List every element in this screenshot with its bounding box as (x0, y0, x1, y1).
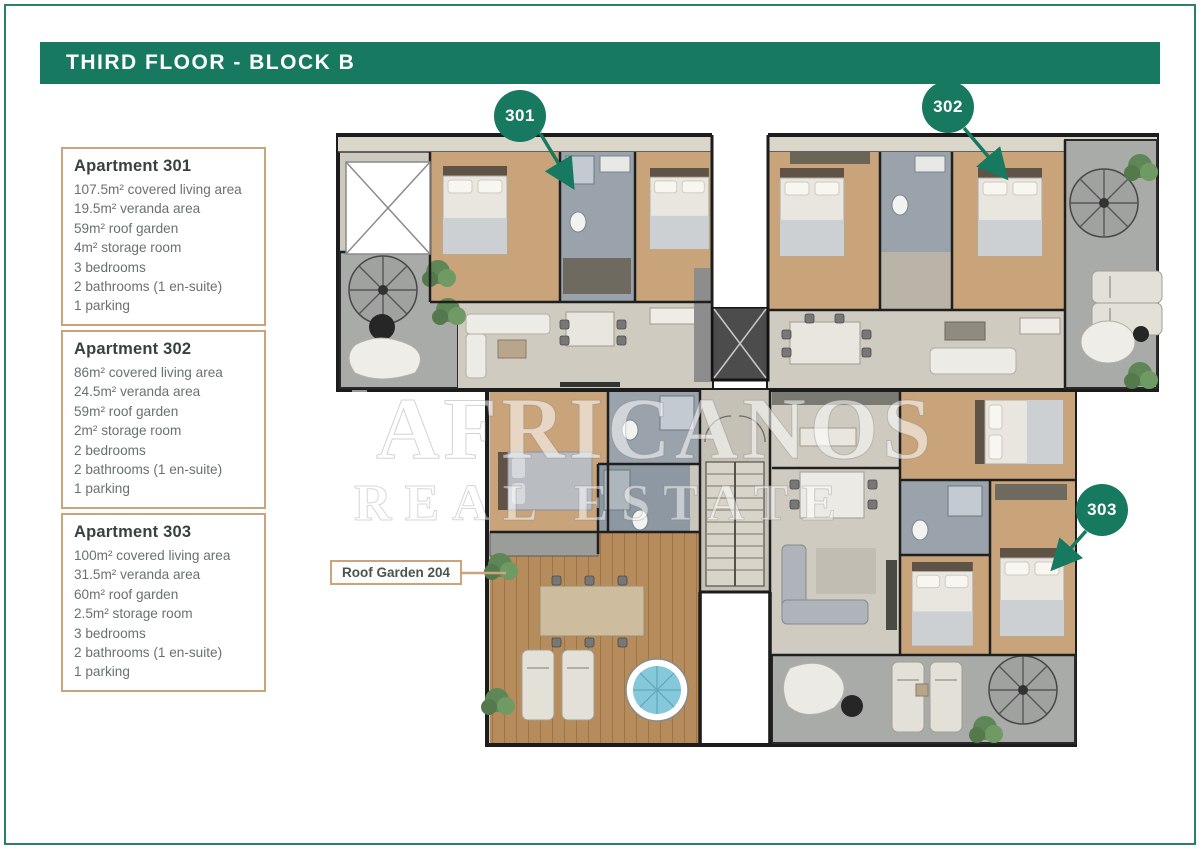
floor-plan: AFRICANOS REAL ESTATE (0, 0, 1200, 849)
watermark: AFRICANOS REAL ESTATE (352, 381, 935, 532)
unit-badge-label: 302 (933, 97, 963, 117)
roof-garden-label: Roof Garden 204 (330, 560, 462, 585)
spiral-staircase-303 (989, 656, 1057, 724)
skylight-void (346, 162, 430, 254)
watermark-line1: AFRICANOS (376, 381, 935, 478)
unit-badge-302: 302 (922, 81, 974, 133)
spa-pool (626, 659, 688, 721)
unit-302 (768, 140, 1162, 389)
floor-plan-page: THIRD FLOOR - BLOCK B Apartment 301 107.… (0, 0, 1200, 849)
unit-badge-label: 303 (1087, 500, 1117, 520)
unit-badge-label: 301 (505, 106, 535, 126)
unit-badge-303: 303 (1076, 484, 1128, 536)
watermark-line2: REAL ESTATE (354, 475, 849, 532)
unit-badge-301: 301 (494, 90, 546, 142)
spiral-staircase-301 (349, 256, 417, 324)
